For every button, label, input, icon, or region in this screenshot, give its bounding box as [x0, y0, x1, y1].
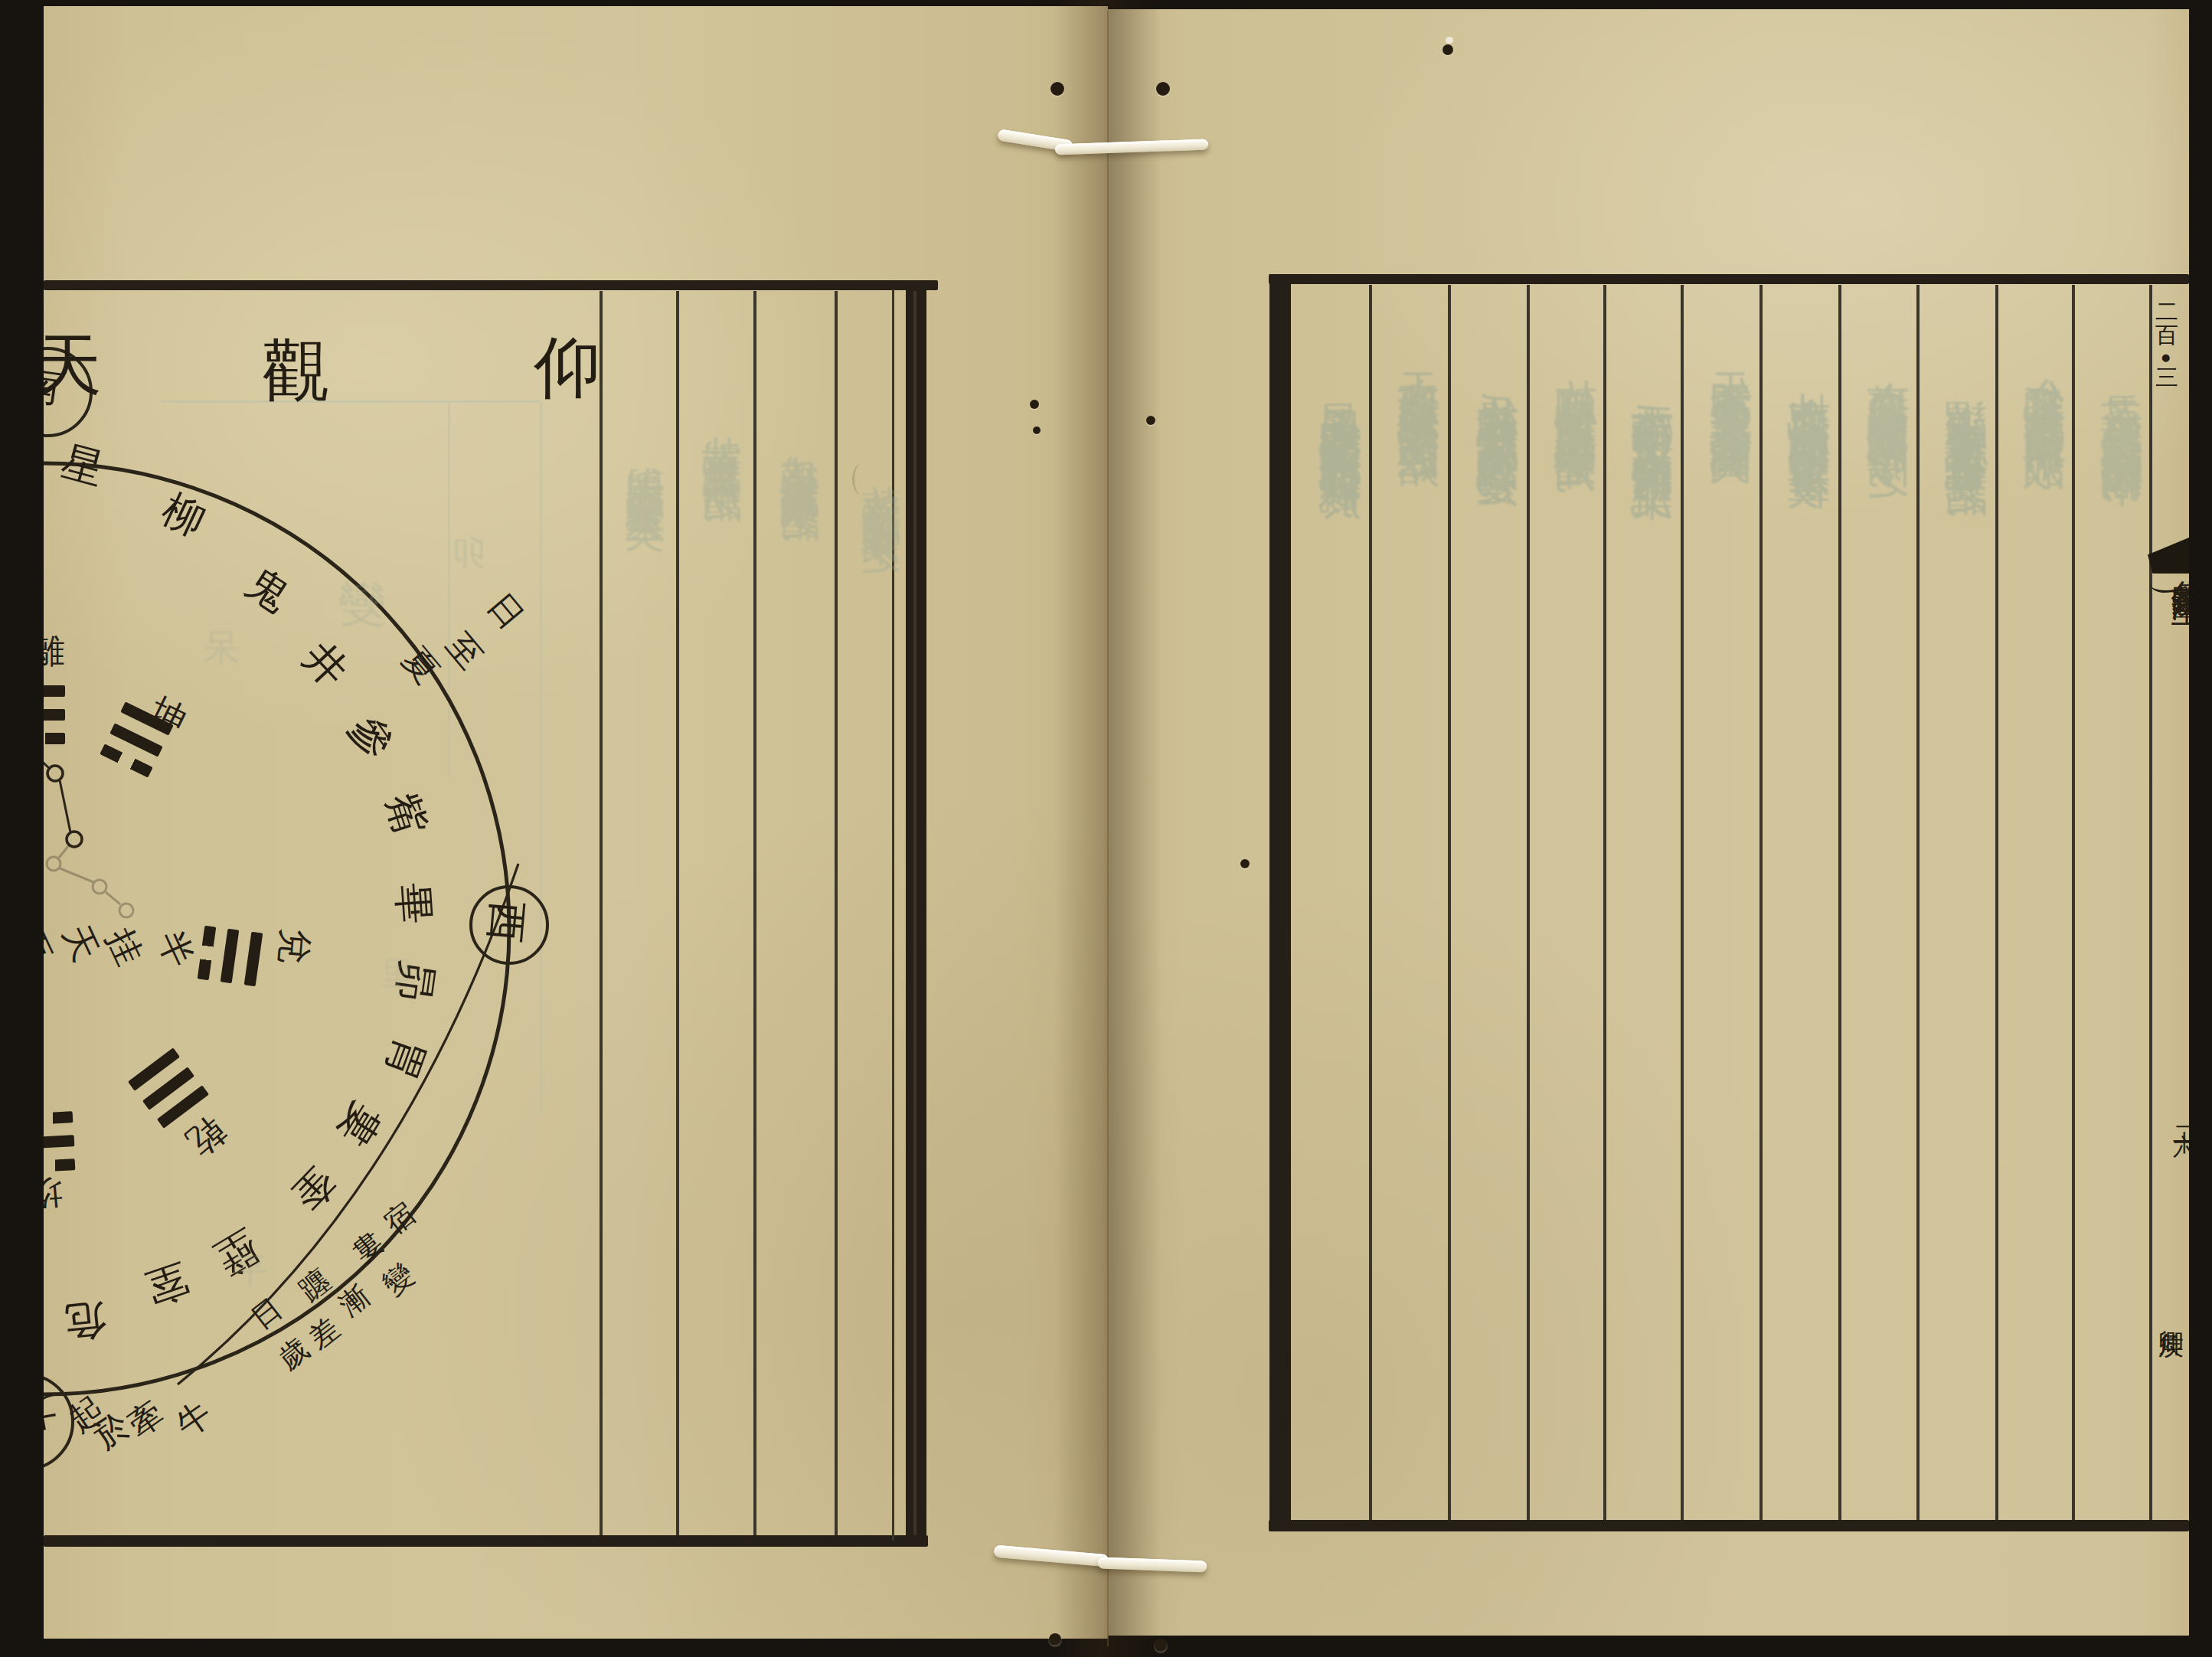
column-rule: [1995, 285, 1998, 1520]
trigram-bar: [44, 733, 65, 744]
hole: [1049, 1633, 1061, 1646]
trigram-label: 兌: [276, 927, 314, 966]
ghost-char: 卯: [445, 508, 492, 513]
column-rule: [2149, 285, 2152, 1520]
ghost-char: 里: [373, 933, 420, 937]
right-page: 二百●三 象數鈎深圖上 二十六 卿矦 易與天地準故能彌綸天地之道仰以觀於天文俯以…: [1108, 9, 2189, 1636]
hole: [1146, 416, 1155, 425]
title-char: 仰: [534, 334, 601, 401]
mansion-char: 危: [63, 1298, 108, 1343]
mansion-char: 昴: [392, 958, 439, 1005]
title-char: 觀: [262, 337, 329, 404]
title-char: 天: [44, 332, 102, 399]
bleed-column: 天文俯以察於地理是故知幽明之故原始: [1387, 338, 1448, 417]
column-rule: [1759, 285, 1763, 1520]
bleed-column: 地之化而不過曲成萬物而不遺通乎晝夜: [1777, 358, 1838, 436]
folio-char: 百: [2155, 324, 2178, 347]
column-rule: [1838, 285, 1841, 1520]
margin-leaf-number: 二十六: [2171, 1110, 2189, 1119]
bleed-column: 謂道繼之者善也成之者性也仁者見之謂: [1934, 365, 1995, 443]
hole: [1050, 82, 1064, 96]
stray-ink-mark: [852, 464, 874, 495]
ghost-char: 變: [328, 542, 396, 547]
hole: [1240, 859, 1250, 868]
bleed-column: 天知命故不憂安土敦乎仁故能愛範圍天: [1699, 338, 1760, 417]
column-rule: [1527, 285, 1530, 1520]
hole: [1443, 44, 1453, 55]
left-page: 南西北 仰觀天 星柳鬼井參觜畢昴胃婁奎壁室危 離坤兌乾坎 夏至日而天挂半起於牽牛…: [44, 6, 1108, 1639]
folio-char: 三: [2155, 366, 2178, 389]
thread-fleck: [1446, 37, 1453, 44]
mansion-char: 畢: [391, 881, 436, 926]
margin-running-title: 象數鈎深圖上: [2168, 554, 2189, 573]
column-rule: [2072, 285, 2075, 1520]
bleed-column: 君子之道鮮矣顯諸仁藏諸用鼓萬物而不: [2089, 361, 2151, 440]
column-rule: [1603, 285, 1606, 1520]
sky-circle-diagram: [44, 6, 1108, 1639]
hole: [1155, 1639, 1167, 1652]
column-rule: [1369, 285, 1372, 1520]
column-rule: [1916, 285, 1920, 1520]
column-rule: [1448, 285, 1451, 1520]
bleed-column: 乎萬物而道濟天下故不過旁行而不流樂: [1620, 369, 1681, 447]
bleed-column: 反終故知死生之說精氣為物遊魂為變是: [1465, 358, 1527, 436]
trigram-label: 離: [44, 634, 65, 668]
right-page-top-border: [1269, 274, 2189, 284]
margin-lower-marks: 卿矦: [2155, 1309, 2187, 1315]
hole: [1030, 400, 1039, 409]
book-scan: 南西北 仰觀天 星柳鬼井參觜畢昴胃婁奎壁室危 離坤兌乾坎 夏至日而天挂半起於牽牛…: [0, 0, 2212, 1657]
fishtail-curve: [2151, 574, 2189, 593]
bleed-column: 與聖人同憂盛德大業至矣: [616, 435, 673, 485]
bleed-column: 之道而知故神无方而易无體一陰一陽之: [1856, 346, 1917, 424]
folio-char: 二: [2155, 300, 2178, 323]
right-page-left-frame: [1269, 274, 1291, 1531]
hole: [1033, 427, 1041, 434]
right-page-bottom-border: [1269, 1520, 2189, 1531]
big-dipper-asterism: [44, 759, 133, 917]
bleed-column: 哉富有之謂大業日新之謂: [693, 404, 750, 455]
hole: [1156, 82, 1170, 96]
column-rule: [1681, 285, 1684, 1520]
trigram-bar: [44, 685, 65, 697]
bleed-column: 故知鬼神之情狀與天地相似故不違知周: [1544, 346, 1605, 424]
trigram-bar: [44, 709, 65, 721]
direction-label: 西: [484, 900, 529, 945]
gutter-crease: [1107, 11, 1109, 1646]
trigram-label: 坎: [44, 1175, 64, 1211]
folio-char: ●: [2161, 352, 2170, 362]
bleed-column: 易與天地準故能彌綸天地之道仰以觀於: [1309, 369, 1370, 447]
bleed-column: 盛德生生之謂易成象之謂: [771, 423, 828, 474]
ghost-char: 呆: [194, 602, 246, 606]
bleed-column: 之仁知者見之謂之知百姓日用而不知故: [2012, 342, 2073, 420]
ghost-char: 平: [224, 1228, 274, 1233]
